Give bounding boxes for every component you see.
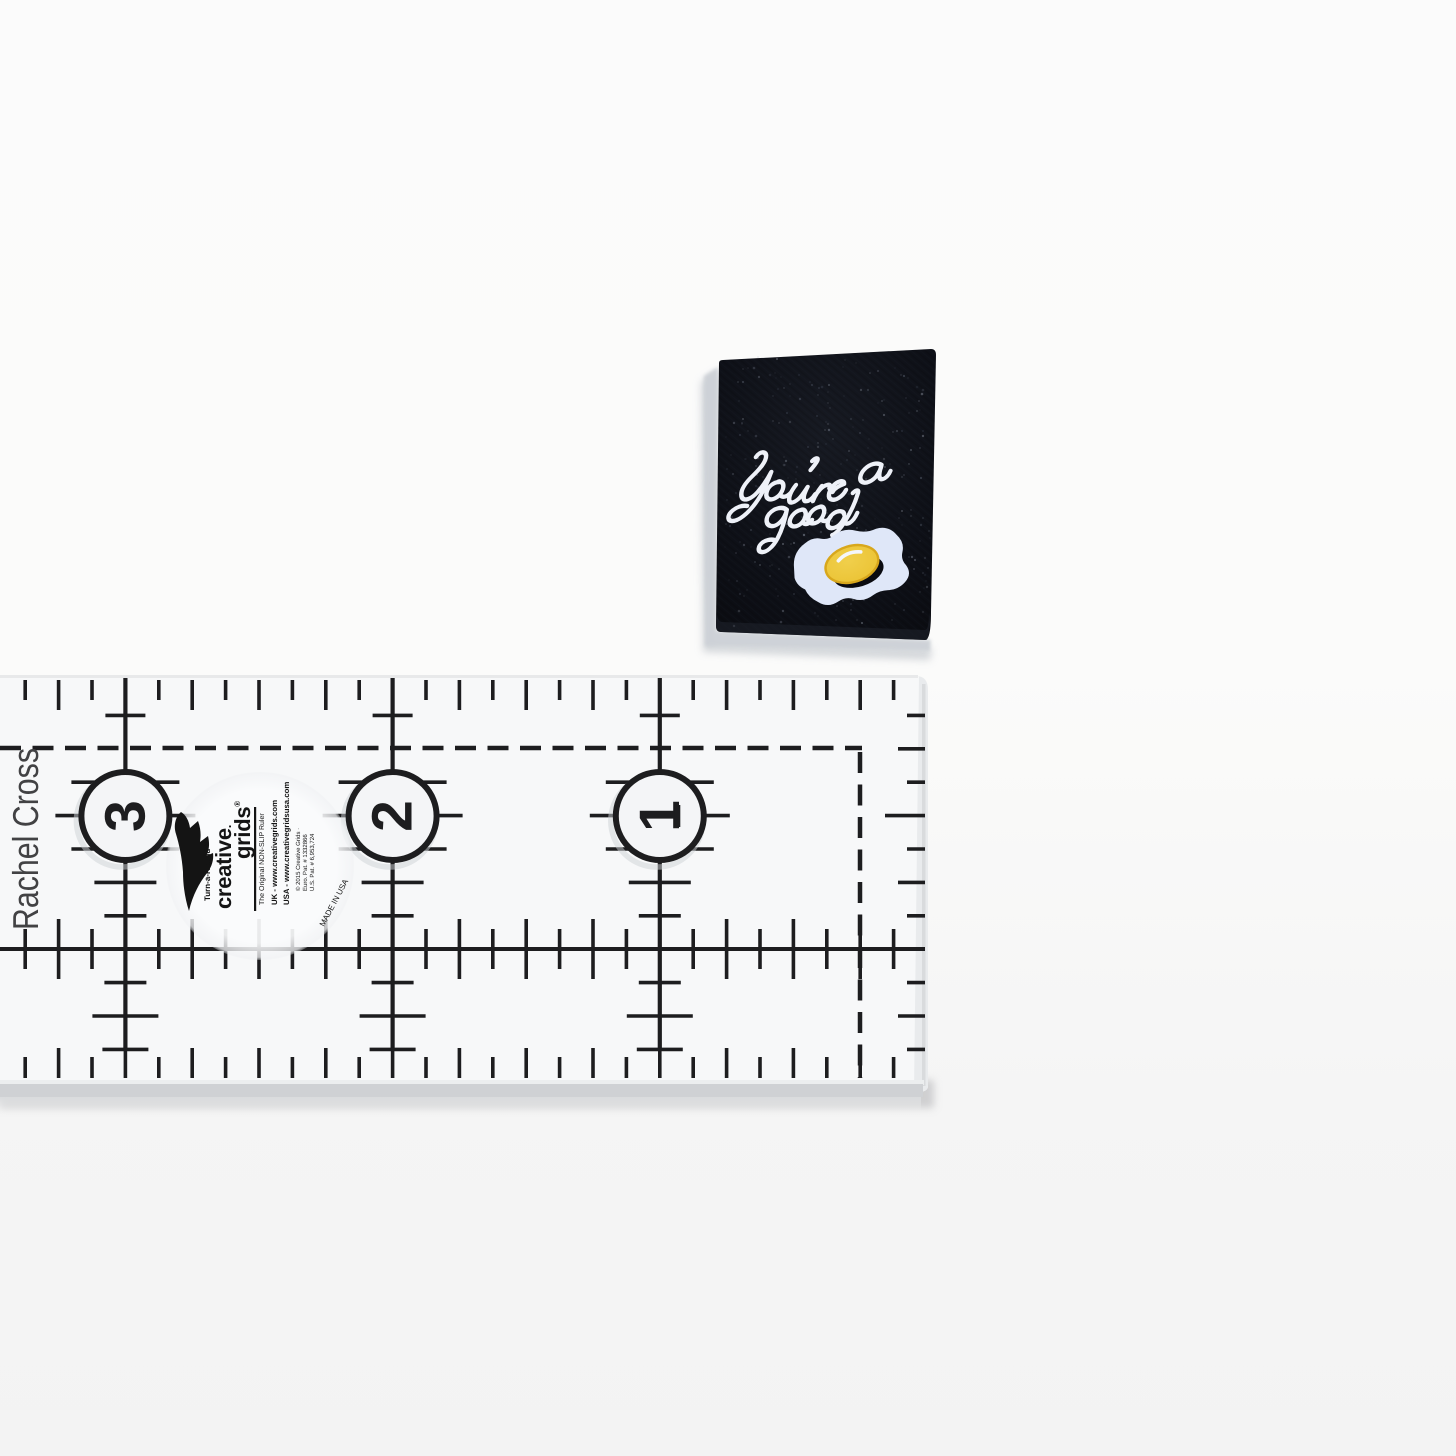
svg-text:The Original NON-SLIP Ruler: The Original NON-SLIP Ruler: [258, 813, 266, 905]
svg-text:© 2015 Creative Grids ·: © 2015 Creative Grids ·: [295, 828, 302, 891]
svg-text:Euro. Pat. # 1332866: Euro. Pat. # 1332866: [302, 834, 309, 891]
svg-text:UK - www.creativegrids.com: UK - www.creativegrids.com: [270, 800, 279, 905]
svg-text:USA - www.creativegridsusa.com: USA - www.creativegridsusa.com: [282, 782, 291, 905]
svg-text:2: 2: [361, 800, 425, 832]
svg-text:grids®: grids®: [230, 801, 255, 859]
svg-text:3: 3: [93, 800, 157, 832]
svg-text:1: 1: [628, 800, 692, 832]
svg-text:Rachel Cross: Rachel Cross: [5, 748, 46, 930]
svg-text:U.S. Pat. # 6,953,724: U.S. Pat. # 6,953,724: [309, 833, 316, 891]
